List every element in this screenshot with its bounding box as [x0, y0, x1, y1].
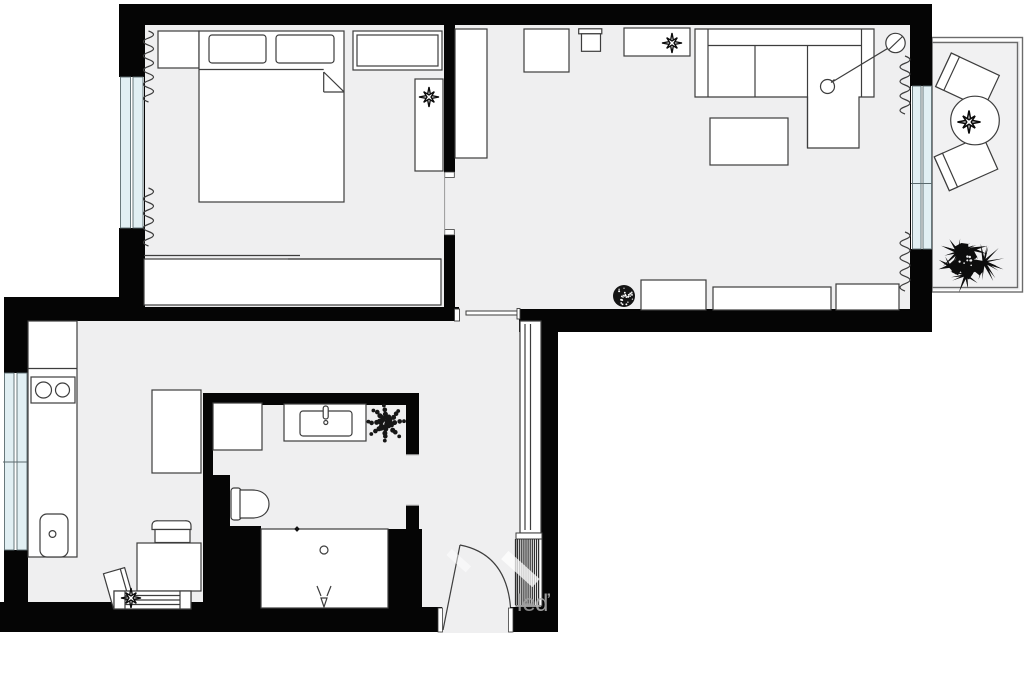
svg-text:le: le	[517, 590, 536, 617]
svg-text:ď: ď	[535, 590, 550, 617]
